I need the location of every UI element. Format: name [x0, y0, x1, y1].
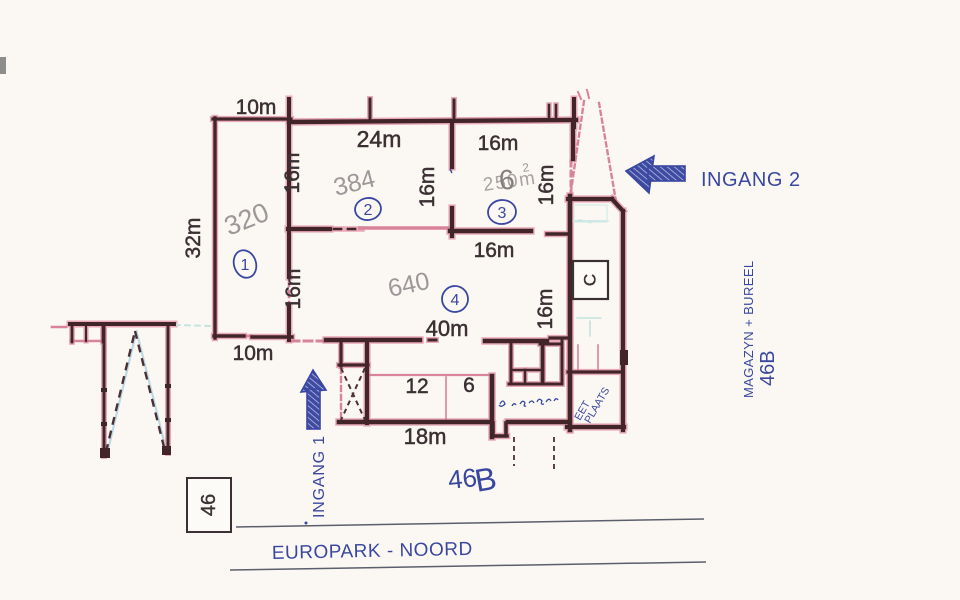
svg-text:40m: 40m [426, 316, 469, 341]
svg-text:1: 1 [241, 257, 250, 274]
svg-text:3: 3 [498, 205, 507, 222]
svg-text:4: 4 [451, 292, 460, 309]
svg-text:16m: 16m [474, 239, 515, 262]
svg-text:10m: 10m [233, 342, 274, 365]
svg-text:24m: 24m [357, 126, 402, 152]
svg-text:6: 6 [463, 374, 475, 397]
svg-text:EUROPARK - NOORD: EUROPARK - NOORD [272, 539, 473, 564]
svg-text:MAGAZYN + BUREEL: MAGAZYN + BUREEL [741, 260, 756, 398]
svg-text:INGANG 1: INGANG 1 [311, 435, 328, 518]
svg-text:46B: 46B [757, 350, 779, 386]
svg-text:16m: 16m [478, 132, 519, 155]
svg-text:16m: 16m [282, 269, 305, 310]
svg-text:6: 6 [497, 164, 516, 196]
svg-text:12: 12 [405, 375, 428, 398]
svg-text:46: 46 [198, 494, 220, 516]
svg-text:16m: 16m [281, 153, 304, 194]
svg-text:10m: 10m [236, 96, 277, 119]
svg-text:32m: 32m [182, 218, 205, 259]
svg-text:16m: 16m [416, 167, 439, 208]
svg-text:C: C [581, 274, 600, 286]
svg-text:16m: 16m [535, 165, 558, 206]
svg-text:2: 2 [364, 202, 373, 219]
svg-text:18m: 18m [404, 424, 447, 449]
svg-text:16m: 16m [534, 289, 557, 330]
svg-text:INGANG 2: INGANG 2 [701, 169, 801, 191]
